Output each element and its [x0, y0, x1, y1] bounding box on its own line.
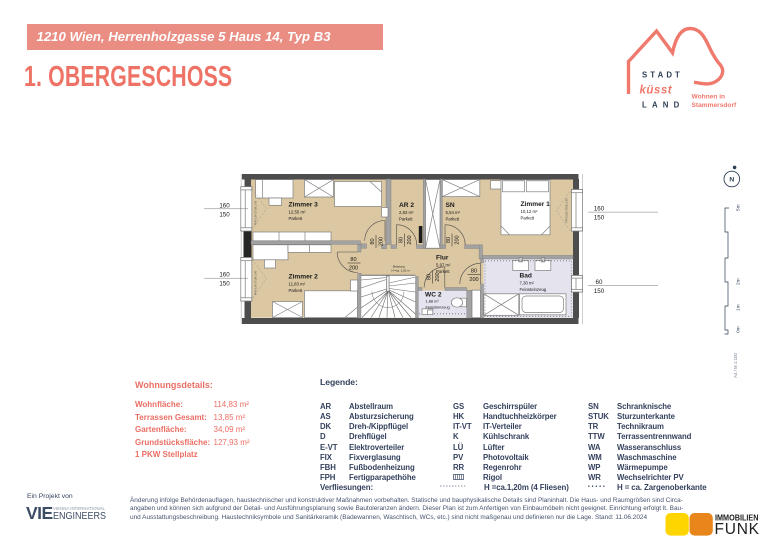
svg-text:5m: 5m — [736, 204, 742, 211]
svg-text:FPH 0,90 STUK 2,40: FPH 0,90 STUK 2,40 — [254, 200, 258, 225]
svg-text:H =ca. 1,02 m: H =ca. 1,02 m — [392, 269, 411, 273]
svg-text:200: 200 — [379, 237, 385, 246]
svg-text:160: 160 — [594, 206, 605, 213]
svg-text:200: 200 — [469, 277, 478, 283]
svg-text:2m: 2m — [736, 278, 742, 285]
svg-text:80: 80 — [399, 237, 405, 243]
svg-text:80: 80 — [427, 274, 433, 280]
svg-text:Zimmer 1: Zimmer 1 — [521, 201, 551, 208]
svg-text:N: N — [729, 177, 734, 184]
svg-text:Parkett: Parkett — [446, 217, 460, 222]
svg-text:5,97 m²: 5,97 m² — [436, 263, 451, 268]
svg-text:150: 150 — [219, 211, 230, 218]
svg-text:A4 / M 1:100: A4 / M 1:100 — [733, 353, 738, 378]
svg-text:80: 80 — [350, 257, 356, 263]
svg-text:Flur: Flur — [436, 255, 449, 262]
svg-text:160: 160 — [219, 202, 230, 209]
svg-text:200: 200 — [455, 235, 461, 244]
svg-text:1m: 1m — [736, 304, 742, 311]
svg-text:7,30 m²: 7,30 m² — [520, 281, 535, 286]
svg-text:1,88 m²: 1,88 m² — [426, 299, 440, 304]
svg-text:80: 80 — [446, 237, 452, 243]
svg-text:150: 150 — [594, 288, 605, 295]
svg-text:150: 150 — [594, 215, 605, 222]
svg-text:VIE: VIE — [26, 503, 53, 523]
svg-text:10,12 m²: 10,12 m² — [521, 209, 539, 214]
svg-text:Feinsteinzeug: Feinsteinzeug — [520, 287, 547, 292]
svg-text:FUNK: FUNK — [715, 521, 760, 538]
svg-text:200: 200 — [349, 266, 358, 272]
svg-text:Bad: Bad — [520, 273, 532, 280]
svg-text:Feinsteinzeug: Feinsteinzeug — [426, 305, 450, 310]
svg-text:FPH 0,85 STUK 2,40: FPH 0,85 STUK 2,40 — [565, 198, 569, 223]
svg-text:SN: SN — [446, 202, 455, 209]
svg-text:160: 160 — [219, 272, 230, 279]
svg-text:80: 80 — [370, 238, 376, 244]
svg-text:5,54 m²: 5,54 m² — [446, 210, 461, 215]
svg-text:Zimmer 2: Zimmer 2 — [289, 274, 319, 281]
svg-text:Zimmer 3: Zimmer 3 — [289, 202, 319, 209]
svg-text:WC 2: WC 2 — [425, 292, 442, 299]
svg-text:150: 150 — [219, 281, 230, 288]
svg-text:2,83 m²: 2,83 m² — [399, 210, 414, 215]
svg-text:80: 80 — [471, 269, 477, 275]
svg-text:Parkett: Parkett — [289, 216, 303, 221]
svg-text:200: 200 — [435, 272, 441, 281]
svg-text:0m: 0m — [736, 326, 742, 333]
svg-text:Parkett: Parkett — [521, 216, 535, 221]
svg-text:200: 200 — [407, 235, 413, 244]
svg-text:Parkett: Parkett — [289, 288, 303, 293]
svg-text:ENGINEERS: ENGINEERS — [53, 511, 106, 522]
svg-text:Parkett: Parkett — [399, 217, 413, 222]
svg-text:AR 2: AR 2 — [399, 202, 414, 209]
svg-text:60: 60 — [596, 279, 603, 286]
svg-text:11,83 m²: 11,83 m² — [289, 282, 306, 287]
svg-text:FPH 0,90 STUK 2,40: FPH 0,90 STUK 2,40 — [254, 270, 258, 295]
svg-text:12,55 m²: 12,55 m² — [289, 210, 307, 215]
